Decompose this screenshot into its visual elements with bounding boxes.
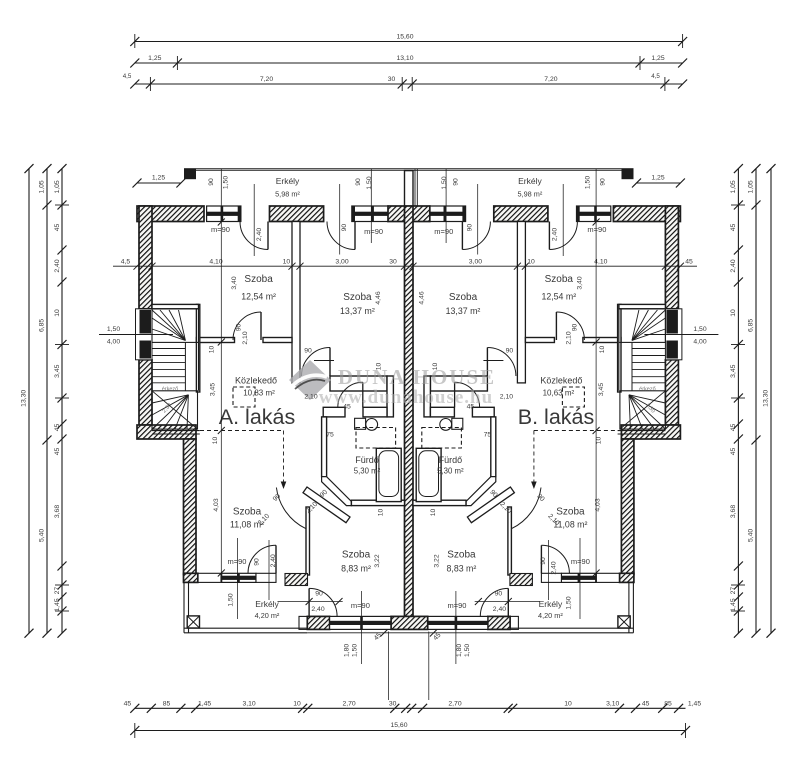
svg-text:90: 90 [315,591,323,598]
svg-text:45: 45 [642,701,650,708]
svg-text:12,54 m²: 12,54 m² [541,292,576,302]
svg-text:5,98 m²: 5,98 m² [275,190,300,199]
svg-text:13,30: 13,30 [763,390,770,407]
svg-text:2,40: 2,40 [493,606,506,613]
svg-text:1,45: 1,45 [730,598,737,611]
svg-text:3,22: 3,22 [433,554,440,567]
svg-text:4,5: 4,5 [123,73,132,80]
svg-text:15,60: 15,60 [390,722,407,729]
svg-text:2,40: 2,40 [256,228,263,241]
svg-text:érkező: érkező [639,387,656,393]
svg-text:3,45: 3,45 [598,383,605,396]
svg-text:45: 45 [124,701,132,708]
svg-text:Erkély: Erkély [539,599,563,609]
svg-text:1,05: 1,05 [748,180,755,193]
svg-text:7,20: 7,20 [544,76,557,83]
svg-text:13,37 m²: 13,37 m² [446,306,481,316]
svg-text:4,00: 4,00 [693,339,706,346]
svg-text:2,40: 2,40 [54,259,61,272]
svg-text:4,10: 4,10 [209,258,222,265]
svg-text:75: 75 [326,432,334,439]
svg-text:45: 45 [467,404,475,411]
svg-text:1,25: 1,25 [152,175,165,182]
svg-text:Szoba: Szoba [244,274,273,285]
svg-text:10: 10 [430,509,437,517]
svg-text:27: 27 [730,587,737,595]
svg-text:45: 45 [730,424,737,432]
svg-text:1,45: 1,45 [688,701,701,708]
svg-text:10: 10 [599,346,606,354]
svg-text:1,50: 1,50 [441,176,448,189]
svg-text:5,40: 5,40 [748,529,755,542]
svg-text:2,10: 2,10 [565,331,572,344]
svg-text:90: 90 [452,178,459,186]
svg-text:3,40: 3,40 [231,276,238,289]
svg-text:5,30 m²: 5,30 m² [354,467,381,476]
svg-text:Szoba: Szoba [343,292,372,303]
svg-text:1,45: 1,45 [198,701,211,708]
svg-text:4,03: 4,03 [594,498,601,511]
svg-text:1,05: 1,05 [730,180,737,193]
svg-text:2,70: 2,70 [448,701,461,708]
svg-text:Szoba: Szoba [233,507,262,518]
svg-text:1,25: 1,25 [651,55,664,62]
svg-text:10: 10 [564,701,572,708]
svg-text:1,50: 1,50 [693,326,706,333]
svg-text:Közlekedő: Közlekedő [540,376,582,386]
svg-text:5,98 m²: 5,98 m² [518,190,543,199]
svg-text:Szoba: Szoba [342,550,371,561]
svg-text:2,40: 2,40 [270,554,277,567]
svg-text:90: 90 [341,224,348,232]
svg-text:45: 45 [54,424,61,432]
svg-text:m=90: m=90 [448,601,467,610]
svg-text:10: 10 [212,437,219,445]
svg-text:45: 45 [685,258,693,265]
svg-text:1,45: 1,45 [54,598,61,611]
svg-text:45: 45 [343,404,351,411]
svg-text:10,83 m²: 10,83 m² [243,389,275,398]
svg-text:3,22: 3,22 [374,554,381,567]
svg-text:m=90: m=90 [211,225,230,234]
svg-text:1,05: 1,05 [54,180,61,193]
svg-text:2,10: 2,10 [242,331,249,344]
svg-text:4,00: 4,00 [107,339,120,346]
svg-text:3,40: 3,40 [576,276,583,289]
svg-text:13,30: 13,30 [21,390,28,407]
svg-text:90: 90 [572,324,579,332]
svg-text:m=90: m=90 [364,227,383,236]
svg-text:90: 90 [254,558,261,566]
svg-text:75: 75 [484,432,492,439]
svg-text:90: 90 [540,557,547,565]
svg-text:10: 10 [376,363,383,371]
svg-text:45: 45 [54,448,61,456]
svg-text:Szoba: Szoba [449,292,478,303]
svg-text:6,85: 6,85 [748,319,755,332]
svg-text:90: 90 [599,178,606,186]
svg-text:6,85: 6,85 [39,319,46,332]
svg-text:45: 45 [54,224,61,232]
svg-text:1,50: 1,50 [366,176,373,189]
svg-text:10: 10 [527,258,535,265]
svg-text:m=90: m=90 [351,601,370,610]
svg-text:3,00: 3,00 [469,258,482,265]
svg-text:90: 90 [467,224,474,232]
svg-text:1,50: 1,50 [223,176,230,189]
svg-text:13,10: 13,10 [396,55,413,62]
svg-text:A. lakás: A. lakás [219,405,295,429]
svg-text:30: 30 [388,76,396,83]
svg-text:B. lakás: B. lakás [518,405,594,429]
svg-text:90: 90 [506,348,514,355]
svg-text:Szoba: Szoba [447,550,476,561]
svg-text:90: 90 [304,348,312,355]
svg-text:3,00: 3,00 [335,258,348,265]
svg-text:90: 90 [208,178,215,186]
svg-text:2,10: 2,10 [304,394,317,401]
svg-text:Erkély: Erkély [255,599,279,609]
svg-text:90: 90 [355,178,362,186]
svg-text:1,50: 1,50 [585,176,592,189]
svg-text:90: 90 [236,324,243,332]
svg-text:4,46: 4,46 [375,291,382,304]
svg-text:Szoba: Szoba [556,507,585,518]
svg-text:4,5: 4,5 [651,73,660,80]
svg-text:2,40: 2,40 [311,606,324,613]
svg-text:4,20 m²: 4,20 m² [255,611,280,620]
svg-text:10: 10 [432,363,439,371]
svg-text:85: 85 [664,701,672,708]
svg-text:3,45: 3,45 [730,364,737,377]
svg-text:4,5: 4,5 [121,258,131,265]
svg-text:1,50: 1,50 [228,593,235,606]
svg-text:1,25: 1,25 [148,55,161,62]
svg-text:Erkély: Erkély [518,176,542,186]
svg-text:1,50: 1,50 [566,596,573,609]
svg-text:2,40: 2,40 [550,561,557,574]
svg-text:1,80: 1,80 [344,644,351,657]
svg-text:3,10: 3,10 [606,701,619,708]
svg-text:85: 85 [163,701,171,708]
svg-text:2,10: 2,10 [500,394,513,401]
svg-text:10: 10 [595,437,602,445]
svg-text:10: 10 [293,701,301,708]
svg-text:8,83 m²: 8,83 m² [341,564,371,574]
svg-text:7,20: 7,20 [260,76,273,83]
svg-text:90: 90 [495,591,503,598]
svg-text:12,54 m²: 12,54 m² [241,292,276,302]
svg-text:m=90: m=90 [228,557,247,566]
svg-text:2,40: 2,40 [730,259,737,272]
svg-text:3,10: 3,10 [242,701,255,708]
svg-text:10: 10 [730,309,737,317]
svg-text:2,40: 2,40 [551,228,558,241]
svg-text:1,50: 1,50 [107,326,120,333]
svg-text:5,40: 5,40 [39,529,46,542]
svg-text:1,05: 1,05 [39,180,46,193]
svg-text:m=90: m=90 [587,225,606,234]
svg-text:Fürdő: Fürdő [439,455,463,465]
svg-text:10: 10 [209,346,216,354]
svg-text:3,68: 3,68 [54,505,61,518]
svg-text:45: 45 [730,224,737,232]
svg-text:Szoba: Szoba [545,274,574,285]
svg-text:érkező: érkező [162,387,179,393]
svg-text:5,30 m²: 5,30 m² [437,467,464,476]
svg-text:Fürdő: Fürdő [355,455,379,465]
svg-text:15,60: 15,60 [396,34,413,41]
svg-text:Erkély: Erkély [276,176,300,186]
svg-text:4,03: 4,03 [213,498,220,511]
svg-text:m=90: m=90 [434,227,453,236]
svg-text:10: 10 [54,309,61,317]
svg-text:1,50: 1,50 [352,644,359,657]
svg-text:10,63 m²: 10,63 m² [543,389,575,398]
svg-text:1,25: 1,25 [651,175,664,182]
svg-text:4,20 m²: 4,20 m² [538,611,563,620]
svg-text:10: 10 [283,258,291,265]
svg-text:10: 10 [378,509,385,517]
svg-text:3,45: 3,45 [54,364,61,377]
svg-text:30: 30 [389,258,397,265]
svg-text:1,50: 1,50 [464,644,471,657]
svg-text:1,80: 1,80 [456,644,463,657]
svg-text:DUNA HOUSE: DUNA HOUSE [338,365,496,389]
svg-text:m=90: m=90 [571,557,590,566]
svg-text:3,45: 3,45 [210,383,217,396]
svg-text:4,46: 4,46 [419,291,426,304]
svg-text:8,83 m²: 8,83 m² [446,564,476,574]
svg-text:2,70: 2,70 [342,701,355,708]
svg-text:27: 27 [54,587,61,595]
svg-text:Közlekedő: Közlekedő [235,376,277,386]
svg-text:13,37 m²: 13,37 m² [340,306,375,316]
svg-text:3,68: 3,68 [730,505,737,518]
svg-text:45: 45 [730,448,737,456]
svg-text:30: 30 [389,701,397,708]
